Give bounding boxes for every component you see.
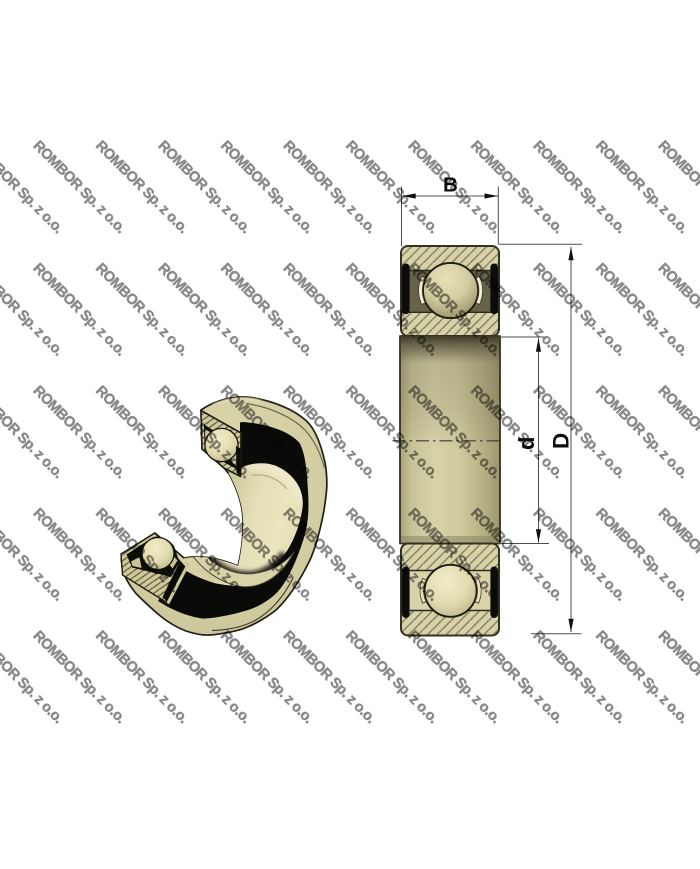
svg-text:D: D — [549, 433, 574, 449]
